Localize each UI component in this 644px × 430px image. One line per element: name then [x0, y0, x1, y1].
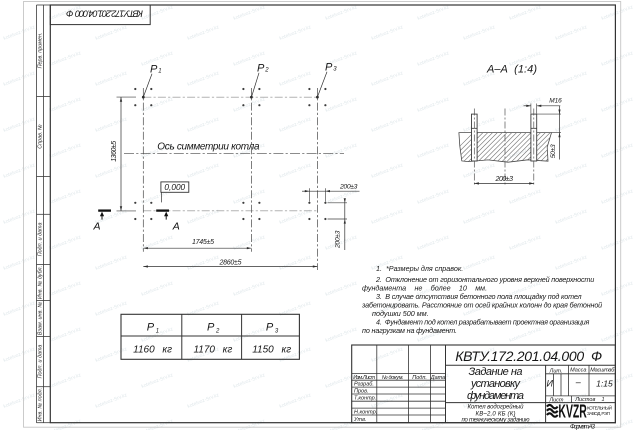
svg-text:Утв.: Утв.	[353, 417, 367, 423]
svg-text:1: 1	[156, 328, 159, 334]
svg-text:кг: кг	[162, 345, 172, 356]
svg-text:М16: М16	[549, 97, 562, 104]
svg-text:KVZR: KVZR	[558, 401, 587, 422]
svg-text:Т.контр.: Т.контр.	[354, 396, 376, 402]
svg-text:Инв. № подл.: Инв. № подл.	[38, 388, 44, 421]
svg-text:Подп. и дата: Подп. и дата	[38, 345, 44, 379]
svg-text:Н.контр.: Н.контр.	[354, 410, 377, 416]
svg-text:P: P	[266, 321, 274, 333]
svg-text:2: 2	[215, 328, 220, 334]
svg-text:установку: установку	[470, 378, 522, 390]
svg-text:кг: кг	[281, 345, 291, 356]
svg-text:Изм.Лист: Изм.Лист	[353, 375, 375, 381]
svg-text:P: P	[257, 62, 265, 74]
svg-text:50±3: 50±3	[550, 144, 557, 158]
svg-text:P: P	[147, 321, 155, 333]
svg-text:Лит.: Лит.	[549, 368, 563, 374]
svg-text:Инв. № дубл.: Инв. № дубл.	[38, 266, 44, 299]
svg-text:Дата: Дата	[430, 375, 446, 381]
svg-text:Пров.: Пров.	[354, 389, 369, 395]
svg-text:2860±5: 2860±5	[219, 259, 242, 266]
svg-text:Разраб.: Разраб.	[354, 382, 374, 388]
svg-text:Задание на: Задание на	[469, 366, 523, 378]
svg-text:1. *Размеры для справок.: 1. *Размеры для справок.	[376, 264, 463, 273]
svg-text:A: A	[172, 220, 180, 232]
svg-text:200±3: 200±3	[334, 230, 341, 249]
svg-text:1150: 1150	[252, 345, 274, 356]
svg-text:1745±5: 1745±5	[192, 239, 214, 246]
svg-text:1360±5: 1360±5	[111, 141, 118, 162]
svg-text:200±3: 200±3	[495, 176, 514, 183]
svg-text:2: 2	[264, 68, 269, 74]
svg-text:Масса: Масса	[570, 367, 586, 373]
svg-text:Масштаб: Масштаб	[590, 367, 615, 373]
svg-text:Справ. №: Справ. №	[38, 124, 44, 149]
svg-text:200±3: 200±3	[339, 183, 358, 190]
svg-text:A: A	[92, 220, 100, 232]
svg-text:Котел водогрейный: Котел водогрейный	[468, 403, 525, 410]
svg-text:КВТУ.172.201.04.000 Ф: КВТУ.172.201.04.000 Ф	[455, 348, 602, 364]
svg-text:Подп. и дата: Подп. и дата	[38, 223, 44, 257]
svg-text:Подп.: Подп.	[412, 375, 427, 381]
svg-text:КОТЕЛЬНЫЙ: КОТЕЛЬНЫЙ	[587, 403, 612, 410]
svg-text:–: –	[575, 377, 582, 387]
svg-text:А–А (1:4): А–А (1:4)	[486, 63, 537, 75]
svg-text:Перв. примен.: Перв. примен.	[38, 33, 44, 69]
svg-text:И: И	[546, 379, 553, 389]
svg-text:фундамента: фундамента	[467, 390, 524, 402]
svg-text:P: P	[150, 63, 158, 75]
svg-text:P: P	[207, 321, 215, 333]
svg-text:№ докум.: № докум.	[382, 375, 404, 381]
svg-text:1:15: 1:15	[596, 379, 613, 389]
svg-text:1: 1	[158, 69, 161, 75]
svg-text:кг: кг	[223, 345, 233, 356]
svg-text:1170: 1170	[193, 345, 215, 356]
svg-text:КВТУ.172.201.04.000 Ф: КВТУ.172.201.04.000 Ф	[66, 8, 143, 18]
svg-text:0,000: 0,000	[164, 182, 185, 192]
svg-text:ЗАВОД, РЭП: ЗАВОД, РЭП	[587, 411, 610, 416]
svg-text:Ось симметрии котла: Ось симметрии котла	[157, 142, 260, 153]
svg-text:по техническому заданию: по техническому заданию	[462, 417, 530, 423]
svg-text:1: 1	[601, 397, 604, 403]
svg-text:P: P	[325, 61, 333, 73]
svg-text:по нагрузкам на фундамент.: по нагрузкам на фундамент.	[362, 326, 457, 335]
svg-text:Взам. инв. №: Взам. инв. №	[38, 302, 44, 336]
svg-text:1160: 1160	[133, 345, 155, 356]
svg-text:Формат А3: Формат А3	[570, 423, 596, 430]
